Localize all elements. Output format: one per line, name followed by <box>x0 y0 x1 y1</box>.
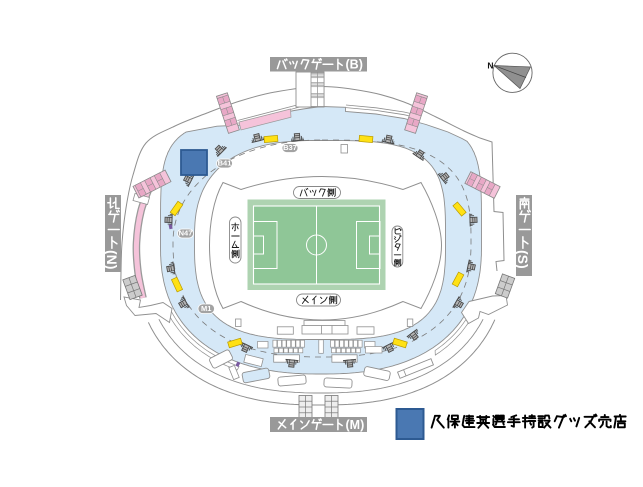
svg-text:(S): (S) <box>515 250 531 269</box>
svg-text:(N): (N) <box>104 250 120 269</box>
svg-text:N: N <box>487 61 493 71</box>
svg-text:B41: B41 <box>218 159 232 168</box>
svg-text:B37: B37 <box>283 143 297 152</box>
svg-text:M1: M1 <box>201 304 211 313</box>
svg-text:(B): (B) <box>346 57 363 71</box>
svg-text:(M): (M) <box>346 418 365 432</box>
svg-text:N47: N47 <box>179 229 193 238</box>
